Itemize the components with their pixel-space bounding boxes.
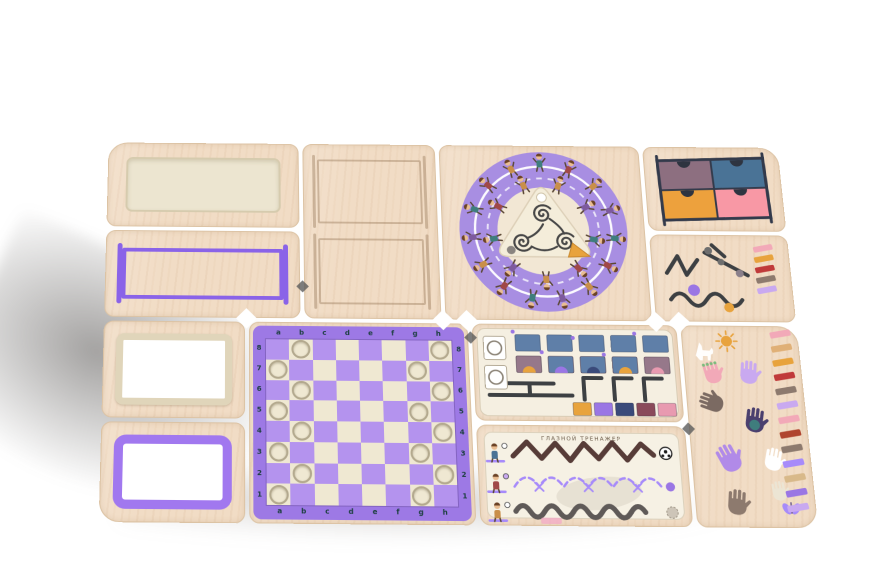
panel-whiteboard-purple (99, 421, 245, 523)
chess-cell-e7 (359, 360, 383, 381)
chess-cell-g4 (408, 422, 432, 443)
chess-cell-f4 (384, 422, 408, 443)
handprint (740, 359, 762, 385)
card-bottom (594, 403, 613, 416)
handprints-graphic (681, 326, 817, 527)
color-stripe (772, 357, 794, 367)
color-stripe (755, 265, 776, 274)
chess-cell-f1 (386, 485, 411, 507)
piece-hole (292, 422, 311, 441)
chess-file-label: c (325, 509, 329, 516)
chess-cell-c5 (313, 401, 337, 422)
chess-rank-label: 6 (458, 388, 463, 395)
doors-frame (655, 157, 772, 222)
chess-file-label: d (348, 509, 353, 516)
chess-cell-e5 (360, 401, 384, 422)
panel-bead-paths (649, 234, 796, 322)
color-stripe (784, 473, 807, 483)
chess-cell-g3 (408, 443, 432, 464)
piece-hole (268, 401, 287, 420)
piece-hole (409, 402, 429, 421)
chess-cell-g5 (407, 401, 431, 422)
chess-cell-a4 (266, 421, 290, 442)
dice-tile (484, 365, 507, 389)
chess-file-label: e (373, 509, 378, 516)
purple-frame (121, 248, 283, 300)
finger-notch (729, 160, 743, 167)
panel-blank-insert (106, 142, 299, 227)
piece-hole (268, 360, 287, 379)
panel-handprints (680, 325, 818, 528)
color-stripe (778, 415, 800, 425)
color-stripe (770, 343, 792, 353)
chess-file-label: h (443, 510, 448, 517)
chess-file-label: a (277, 508, 282, 515)
handprint (713, 440, 748, 475)
whiteboard-tan-surface (115, 333, 232, 405)
chess-rank-label: 2 (461, 472, 466, 479)
chess-cell-e3 (361, 442, 385, 463)
panel-chessboard: abcdefgh 87654321 87654321 abcdefgh (249, 322, 476, 526)
chess-cell-h3 (432, 443, 456, 464)
chess-cell-e1 (362, 484, 386, 506)
color-stripe (756, 275, 777, 284)
chess-cell-d1 (338, 484, 362, 506)
chess-rank-label: 1 (257, 491, 262, 498)
chess-file-label: g (418, 509, 423, 516)
eye-trainer-graphic: ГЛАЗНОЙ ТРЕНАЖЕР (477, 426, 692, 527)
chess-file-label: c (322, 330, 326, 337)
handprint (745, 406, 770, 435)
chess-cell-b1 (290, 484, 314, 506)
engraved-frame-top (317, 159, 423, 224)
chess-cell-e6 (360, 380, 384, 401)
chess-cell-b7 (289, 360, 313, 381)
handprint (698, 387, 727, 415)
color-stripe (782, 458, 805, 468)
panel-eye-trainer: ГЛАЗНОЙ ТРЕНАЖЕР (476, 425, 693, 528)
bead (717, 259, 724, 266)
kid-figure (494, 502, 501, 521)
chess-file-label: a (276, 330, 281, 337)
finger-notch (733, 189, 747, 196)
chess-cell-h1 (433, 485, 458, 507)
chess-cell-d7 (336, 360, 360, 381)
chess-cell-h6 (430, 381, 454, 402)
chess-cell-c4 (313, 421, 337, 442)
chessboard: abcdefgh 87654321 87654321 abcdefgh (253, 326, 472, 522)
chess-cell-c2 (314, 463, 338, 484)
chess-cell-d8 (335, 340, 359, 360)
chess-rank-label: 6 (257, 386, 262, 393)
chess-cell-a7 (266, 359, 289, 380)
handprint (771, 480, 792, 501)
chess-cell-a5 (266, 400, 290, 421)
card-top (547, 335, 573, 352)
chess-cell-f6 (383, 381, 407, 402)
card-top (610, 335, 636, 352)
finger-notch (677, 161, 691, 168)
panel-sliding-doors (642, 147, 786, 232)
chess-cell-e8 (359, 340, 383, 360)
chess-file-label: f (396, 509, 399, 516)
chess-rank-label: 3 (460, 451, 465, 458)
chess-cell-f3 (385, 443, 409, 464)
chess-cell-c6 (313, 380, 337, 401)
chess-cell-d4 (337, 421, 361, 442)
purple-ball-icon (665, 482, 675, 491)
chess-cell-b5 (290, 400, 314, 421)
engraved-frame-bottom (318, 238, 426, 305)
watermark-mark (541, 518, 562, 524)
chess-rank-label: 7 (457, 367, 462, 374)
chess-ranks-left: 87654321 (253, 338, 266, 506)
door-3 (715, 189, 770, 218)
panel-whiteboard-tan (101, 320, 245, 418)
chess-cell-f5 (383, 401, 407, 422)
card-bottom (573, 403, 592, 416)
chess-cell-c1 (314, 484, 338, 506)
color-stripe (773, 372, 795, 382)
color-stripe (754, 254, 775, 263)
card-bottom (658, 403, 677, 416)
chess-rank-label: 7 (257, 365, 262, 372)
piece-hole (410, 444, 430, 463)
chess-cell-h2 (433, 464, 458, 485)
card-top (515, 335, 541, 352)
piece-hole (433, 423, 453, 442)
busy-board-assembly: abcdefgh 87654321 87654321 abcdefgh (99, 142, 816, 526)
maze-hole-top (536, 193, 546, 202)
piece-hole (292, 464, 312, 484)
paper-ball-icon (666, 507, 678, 518)
chess-cell-f7 (382, 360, 406, 381)
chess-cell-e2 (361, 463, 385, 484)
bead (688, 284, 701, 295)
chess-file-label: e (368, 330, 373, 337)
chess-cell-c7 (313, 360, 337, 381)
door-0 (659, 161, 713, 189)
chess-file-label: b (299, 330, 304, 337)
giraffe-icon (695, 342, 714, 360)
chess-cell-d5 (337, 401, 361, 422)
bead-paths-graphic (650, 235, 795, 321)
matching-cards-graphic (473, 325, 684, 422)
chess-rank-label: 8 (456, 347, 461, 354)
chess-rank-label: 2 (257, 470, 262, 477)
chess-file-label: b (301, 508, 306, 515)
color-stripe (781, 444, 804, 454)
chess-cell-f8 (382, 340, 406, 360)
chess-cell-a6 (266, 380, 290, 401)
piece-hole (432, 382, 452, 401)
color-stripe (757, 285, 778, 294)
chess-cell-c8 (312, 340, 336, 360)
piece-hole (269, 485, 289, 505)
piece-hole (292, 381, 311, 400)
chess-cell-e4 (360, 422, 384, 443)
dice-tile (483, 336, 506, 359)
piece-hole (435, 465, 455, 485)
piece-hole (412, 486, 432, 506)
chess-rank-label: 4 (257, 428, 262, 435)
chess-cell-g2 (409, 464, 434, 485)
chess-cell-d3 (337, 442, 361, 463)
chess-squares (265, 338, 459, 507)
piece-hole (291, 340, 310, 359)
card-bottom (636, 403, 655, 416)
panel-goal-frame (104, 230, 300, 318)
product-photo-scene: abcdefgh 87654321 87654321 abcdefgh (0, 0, 869, 543)
chess-cell-f2 (385, 464, 409, 485)
card-top (642, 336, 668, 353)
handprint (701, 359, 727, 384)
chess-cell-b6 (289, 380, 313, 401)
chess-file-label: d (345, 330, 350, 337)
finger-notch (681, 190, 695, 197)
door-1 (711, 160, 765, 188)
chess-rank-label: 4 (460, 429, 465, 436)
piece-hole (269, 442, 288, 461)
chess-cell-h5 (430, 402, 454, 423)
chess-cell-g1 (410, 485, 435, 507)
chess-cell-g8 (405, 340, 429, 360)
panel-matching-cards (471, 324, 684, 423)
chess-rank-label: 1 (462, 493, 467, 500)
blank-insert-surface (125, 157, 281, 213)
card-bottom (615, 403, 634, 416)
chess-cell-h8 (428, 341, 452, 361)
piece-hole (408, 361, 428, 380)
chess-rank-label: 5 (257, 407, 262, 414)
chess-file-label: g (412, 331, 417, 338)
chess-cell-b4 (290, 421, 314, 442)
color-stripe (769, 329, 791, 339)
chess-rank-label: 5 (459, 408, 464, 415)
panel-ring-game (439, 145, 653, 321)
chess-file-label: h (436, 331, 441, 338)
piece-hole (430, 341, 450, 360)
chess-cell-g6 (406, 381, 430, 402)
sun-icon (715, 331, 738, 352)
chess-cell-c3 (314, 442, 338, 463)
card-top (579, 335, 605, 352)
chess-cell-a2 (267, 462, 291, 483)
handprint (728, 488, 752, 517)
color-stripe (752, 244, 773, 253)
kid-figure (493, 474, 500, 493)
chess-cell-b8 (289, 339, 312, 359)
chess-files-bottom: abcdefgh (253, 506, 472, 519)
chess-cell-d2 (338, 463, 362, 484)
chess-cell-b2 (290, 463, 314, 484)
color-stripe (779, 429, 801, 439)
whiteboard-purple-surface (112, 434, 231, 509)
door-2 (662, 190, 716, 219)
chess-cell-a3 (266, 442, 290, 463)
chess-rank-label: 3 (257, 449, 262, 456)
chess-cell-b3 (290, 442, 314, 463)
kid-figure (491, 443, 498, 462)
chess-cell-a8 (266, 339, 289, 359)
chess-cell-g7 (406, 361, 430, 382)
chess-cell-h7 (429, 361, 453, 382)
panel-engraved-frames (302, 144, 441, 319)
chess-cell-h4 (431, 422, 455, 443)
chess-cell-d6 (336, 380, 360, 401)
color-stripe (776, 400, 798, 410)
chess-cell-a1 (267, 484, 291, 506)
ring-game-graphic (440, 146, 652, 320)
chess-file-label: f (391, 331, 394, 338)
color-stripe (775, 386, 797, 396)
chess-rank-label: 8 (257, 345, 262, 352)
